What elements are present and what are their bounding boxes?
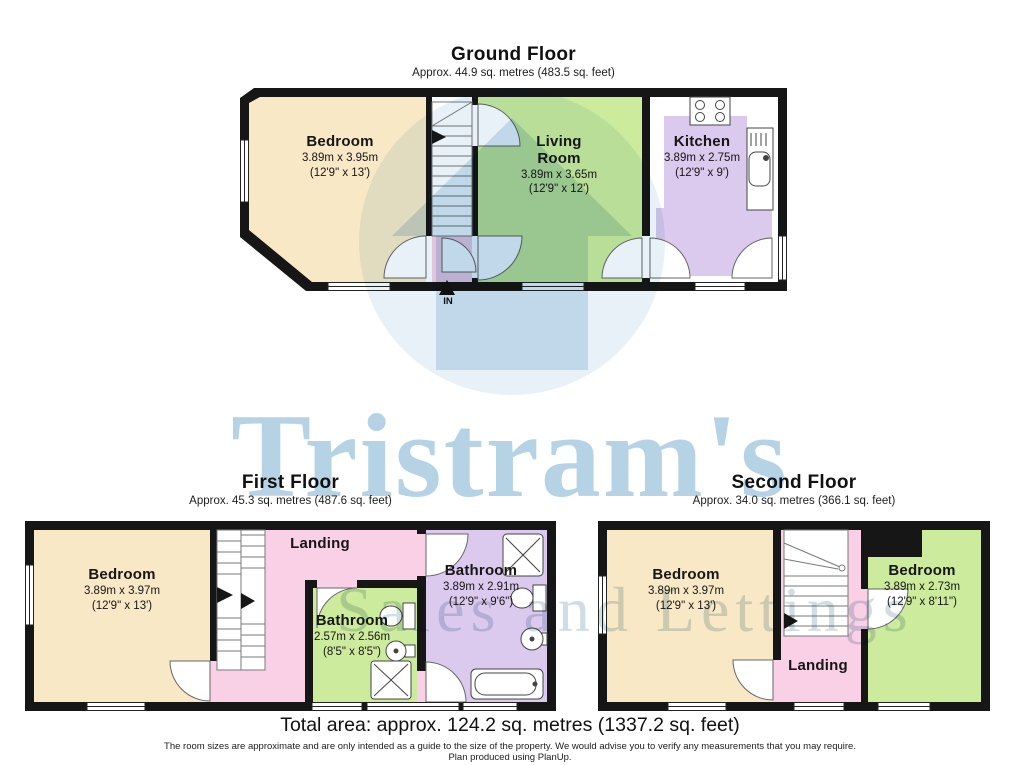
first-floor-plan: Bedroom 3.89m x 3.97m (12'9" x 13') Land… <box>25 521 556 711</box>
kitchen-sink-icon <box>747 128 773 210</box>
hob-icon <box>690 97 730 125</box>
ground-floor-drawing <box>240 88 787 291</box>
total-area-text: Total area: approx. 124.2 sq. metres (13… <box>0 714 1020 737</box>
second-floor-title-block: Second Floor Approx. 34.0 sq. metres (36… <box>598 472 990 509</box>
floorplan-page: Ground Floor Approx. 44.9 sq. metres (48… <box>0 0 1020 765</box>
disclaimer-text: The room sizes are approximate and are o… <box>0 741 1020 752</box>
produced-by-text: Plan produced using PlanUp. <box>0 752 1020 763</box>
stairs-icon <box>217 530 265 670</box>
ground-floor-title: Ground Floor <box>240 44 787 66</box>
first-floor-title: First Floor <box>25 472 556 494</box>
second-floor-drawing <box>598 521 990 711</box>
ground-floor-area: Approx. 44.9 sq. metres (483.5 sq. feet) <box>240 66 787 82</box>
first-floor-drawing <box>25 521 556 711</box>
stairs-icon <box>784 530 848 636</box>
shower-icon <box>503 534 543 576</box>
entrance-arrow-icon <box>439 280 455 295</box>
first-room-fills <box>34 530 547 702</box>
entrance-label: IN <box>443 296 453 307</box>
ground-floor-plan: Bedroom 3.89m x 3.95m (12'9" x 13') Livi… <box>240 88 787 291</box>
second-floor-area: Approx. 34.0 sq. metres (366.1 sq. feet) <box>598 494 990 510</box>
ground-floor-title-block: Ground Floor Approx. 44.9 sq. metres (48… <box>240 44 787 81</box>
first-floor-area: Approx. 45.3 sq. metres (487.6 sq. feet) <box>25 494 556 510</box>
shower-icon <box>371 661 411 699</box>
first-floor-title-block: First Floor Approx. 45.3 sq. metres (487… <box>25 472 556 509</box>
second-floor-plan: Bedroom 3.89m x 3.97m (12'9" x 13') Land… <box>598 521 990 711</box>
stairs-icon <box>432 102 472 236</box>
bathtub-icon <box>471 669 543 699</box>
second-floor-title: Second Floor <box>598 472 990 494</box>
